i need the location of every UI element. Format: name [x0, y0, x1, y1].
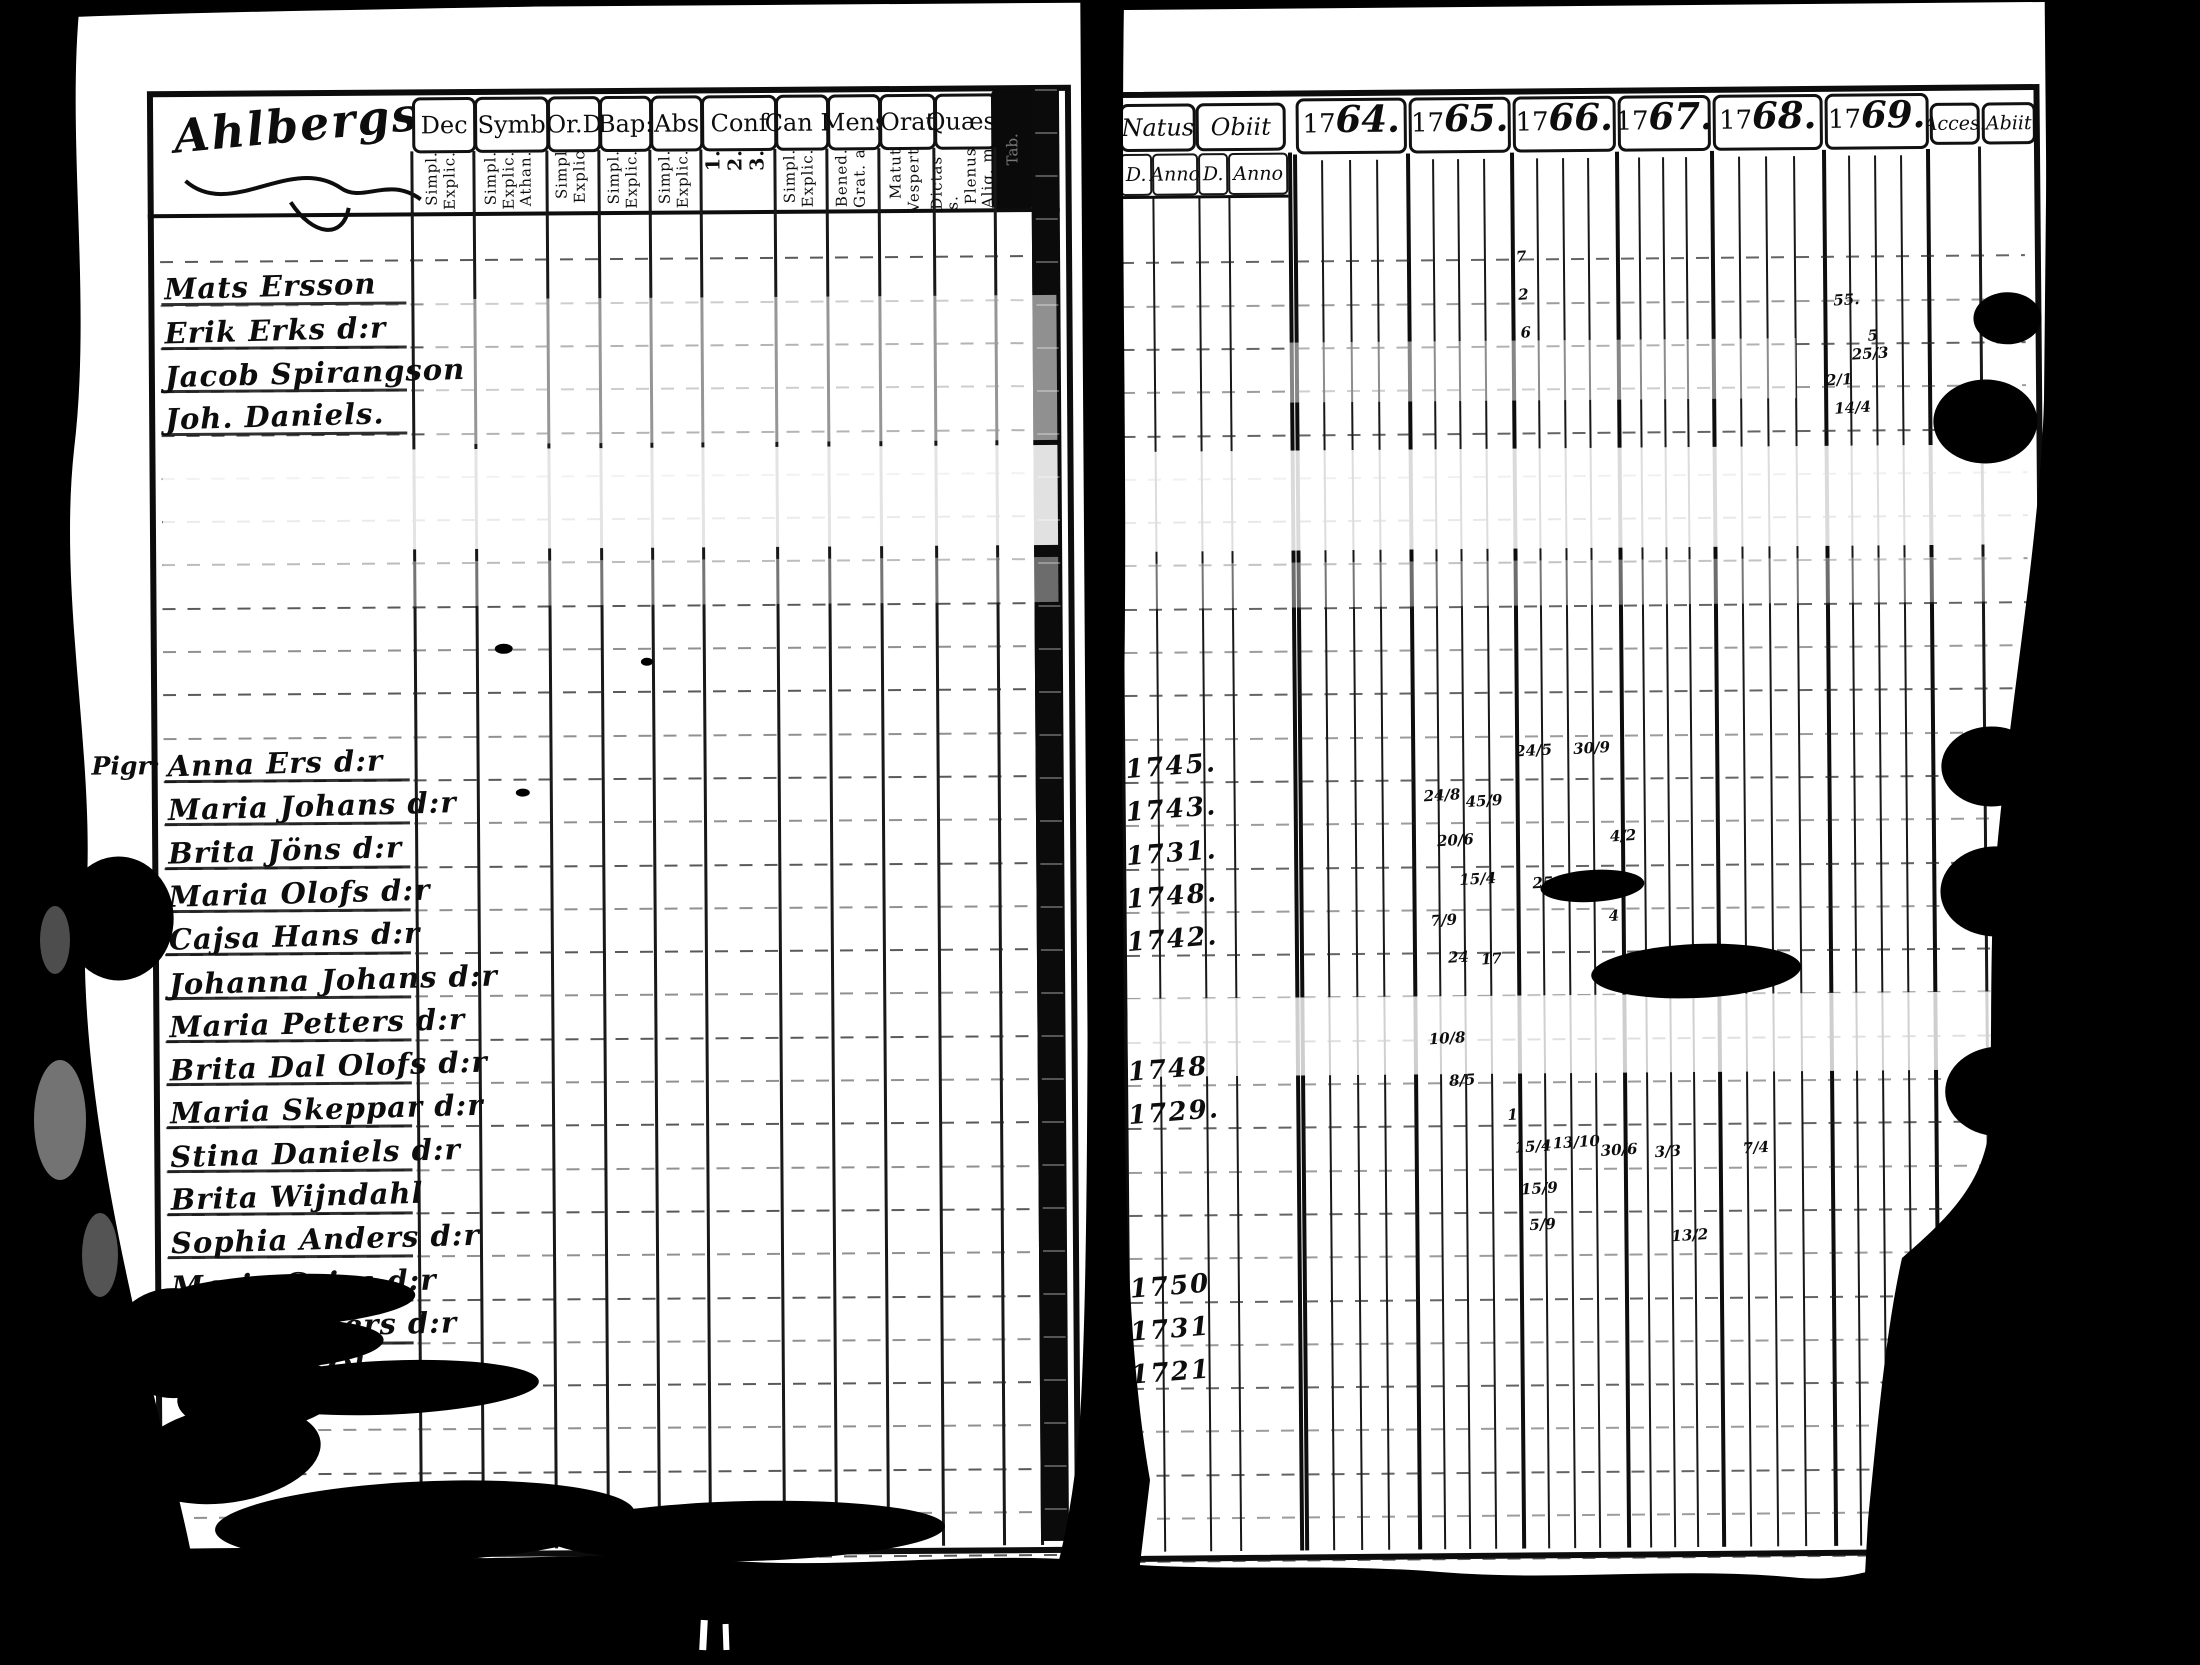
scan-border-gutter — [1026, 0, 1150, 1665]
scan-border-left — [0, 0, 196, 1665]
scan-border — [0, 0, 2200, 1665]
scan-border-top — [0, 0, 760, 20]
bottom-white-mark — [723, 1624, 730, 1650]
ledger-spread: Ahlbergs DecSimpl.Explic.SymbSimpl.Expli… — [0, 0, 2200, 1665]
